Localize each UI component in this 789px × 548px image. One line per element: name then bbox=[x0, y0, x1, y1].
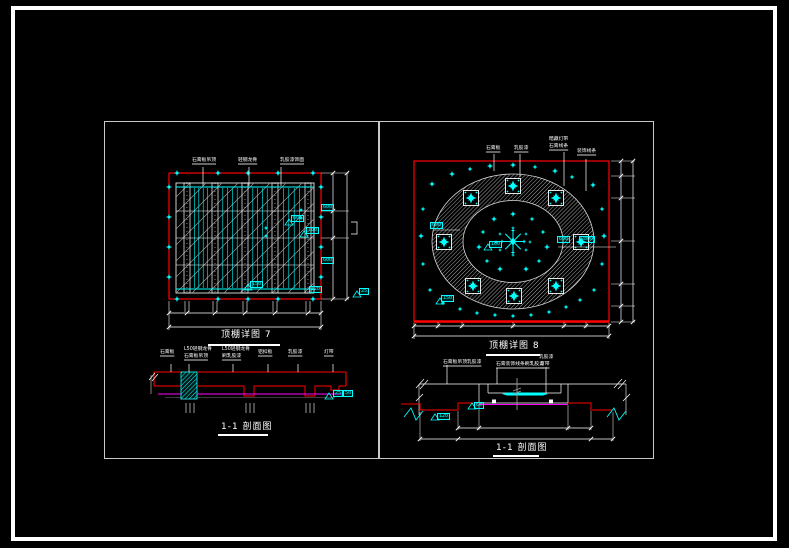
section-caption: 1-1 剖面图 bbox=[496, 443, 548, 453]
slope-tag: 50 bbox=[343, 390, 353, 397]
callout-label: 乳胶漆 bbox=[288, 350, 302, 356]
ceiling-grid-plan-drawing bbox=[105, 122, 380, 460]
viewport-right bbox=[379, 121, 654, 459]
callout-label: 石膏板 bbox=[160, 350, 174, 356]
dim-chip: 600 bbox=[321, 204, 334, 211]
callout-label: 石膏板吊顶 bbox=[184, 354, 208, 360]
slope-tag: 600 bbox=[291, 215, 304, 222]
callout-label: L50轻钢龙骨 bbox=[222, 347, 250, 352]
section-detail-1-1 bbox=[149, 364, 346, 413]
callout-label: 石膏板吊顶 bbox=[192, 158, 216, 164]
callout-label: 乳胶漆饰面 bbox=[280, 158, 304, 164]
slope-tag: 120 bbox=[437, 413, 450, 420]
slope-tag: 150 bbox=[441, 295, 454, 302]
slope-tag: 25 bbox=[333, 390, 343, 397]
callout-label: 轻钢龙骨 bbox=[238, 158, 257, 164]
dim-chip: 2800 bbox=[579, 236, 595, 243]
callout-label: 乳胶漆 bbox=[539, 355, 553, 360]
oval-ceiling-plan-drawing bbox=[380, 122, 655, 460]
slope-tag: 150 bbox=[250, 281, 263, 288]
callout-label: 铝扣板 bbox=[258, 350, 272, 356]
section-caption: 1-1 剖面图 bbox=[221, 422, 273, 432]
callout-label: 石膏板吊顶乳胶漆 bbox=[443, 360, 481, 366]
callout-label: L50轻钢龙骨 bbox=[184, 347, 212, 352]
callout-label: 石膏装饰线条刷乳胶漆 bbox=[496, 362, 544, 368]
slope-tag: 100 bbox=[489, 241, 502, 248]
dim-chip: 600 bbox=[557, 236, 570, 243]
slope-tag: 60 bbox=[474, 402, 484, 409]
dim-chip: 600 bbox=[321, 257, 334, 264]
slope-tag: 25 bbox=[359, 288, 369, 295]
callout-label: 刷乳胶漆 bbox=[222, 354, 241, 360]
callout-label: 乳胶漆 bbox=[514, 146, 528, 152]
callout-label: 暗藏灯带 bbox=[549, 137, 568, 142]
caption-underline bbox=[486, 354, 540, 356]
plan-caption: 顶棚详图 8 bbox=[489, 341, 540, 351]
caption-underline bbox=[218, 434, 268, 436]
section-detail-1-1 bbox=[401, 365, 630, 441]
callout-label: 灯带 bbox=[540, 362, 550, 368]
oval-ceiling-plan bbox=[412, 152, 635, 339]
plan-caption: 顶棚详图 7 bbox=[221, 330, 272, 340]
viewport-left bbox=[104, 121, 379, 459]
callout-label: 石膏线条 bbox=[549, 144, 568, 150]
callout-label: 装饰线条 bbox=[577, 149, 596, 155]
callout-label: 石膏板 bbox=[486, 146, 500, 152]
slope-tag: 100 bbox=[306, 227, 319, 234]
grid-ceiling-plan bbox=[105, 167, 380, 330]
dim-chip: 600 bbox=[430, 222, 443, 229]
callout-label: 灯带 bbox=[324, 350, 334, 356]
cad-canvas: 石膏板吊顶 轻钢龙骨 乳胶漆饰面 600 600 120 600 100 150… bbox=[0, 0, 789, 548]
caption-underline bbox=[493, 455, 539, 457]
dim-chip: 120 bbox=[309, 286, 322, 293]
